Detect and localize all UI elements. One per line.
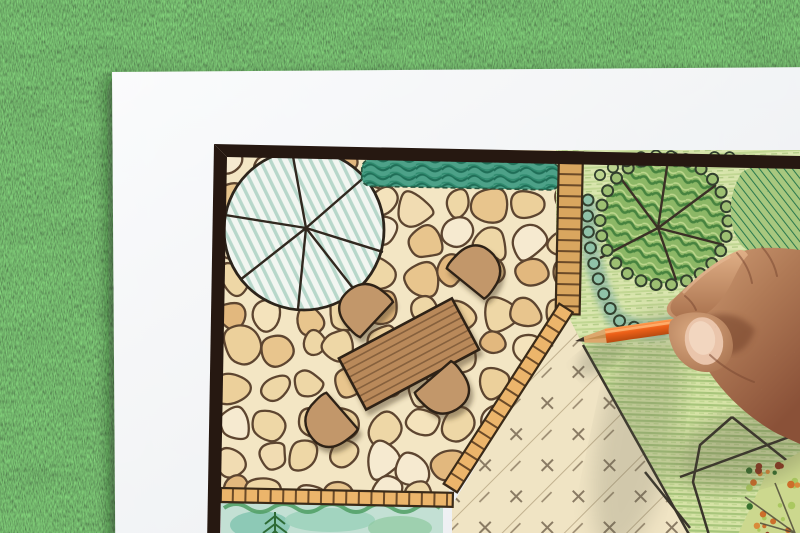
flagstone — [471, 188, 507, 222]
flower-dot — [757, 528, 760, 531]
divider-line — [556, 295, 580, 296]
flagstone — [511, 191, 544, 218]
hedge-row — [361, 159, 560, 190]
divider-line — [557, 251, 581, 252]
flower-dot — [778, 503, 783, 508]
hatched-bush — [731, 163, 800, 259]
flower-dot — [781, 517, 785, 521]
photo-stage — [0, 0, 800, 533]
flower-dot — [747, 503, 753, 509]
timber-edging-strip — [556, 152, 583, 314]
flower-dot — [788, 502, 795, 509]
flagstone — [480, 331, 506, 353]
flagstone — [447, 189, 469, 218]
divider-line — [558, 196, 582, 197]
flower-dot — [787, 481, 795, 489]
flagstone — [515, 259, 548, 286]
flower-dot — [746, 485, 753, 492]
divider-line — [557, 262, 581, 263]
divider-line — [557, 240, 581, 241]
flower-dot — [754, 523, 760, 529]
divider-line — [558, 185, 582, 186]
divider-line — [558, 218, 582, 219]
divider-line — [556, 284, 580, 285]
garden-plan-photo — [0, 0, 800, 533]
divider-line — [556, 273, 580, 274]
flagstone — [442, 217, 474, 247]
divider-line — [557, 229, 581, 230]
divider-line — [558, 207, 582, 208]
divider-line — [559, 174, 583, 175]
